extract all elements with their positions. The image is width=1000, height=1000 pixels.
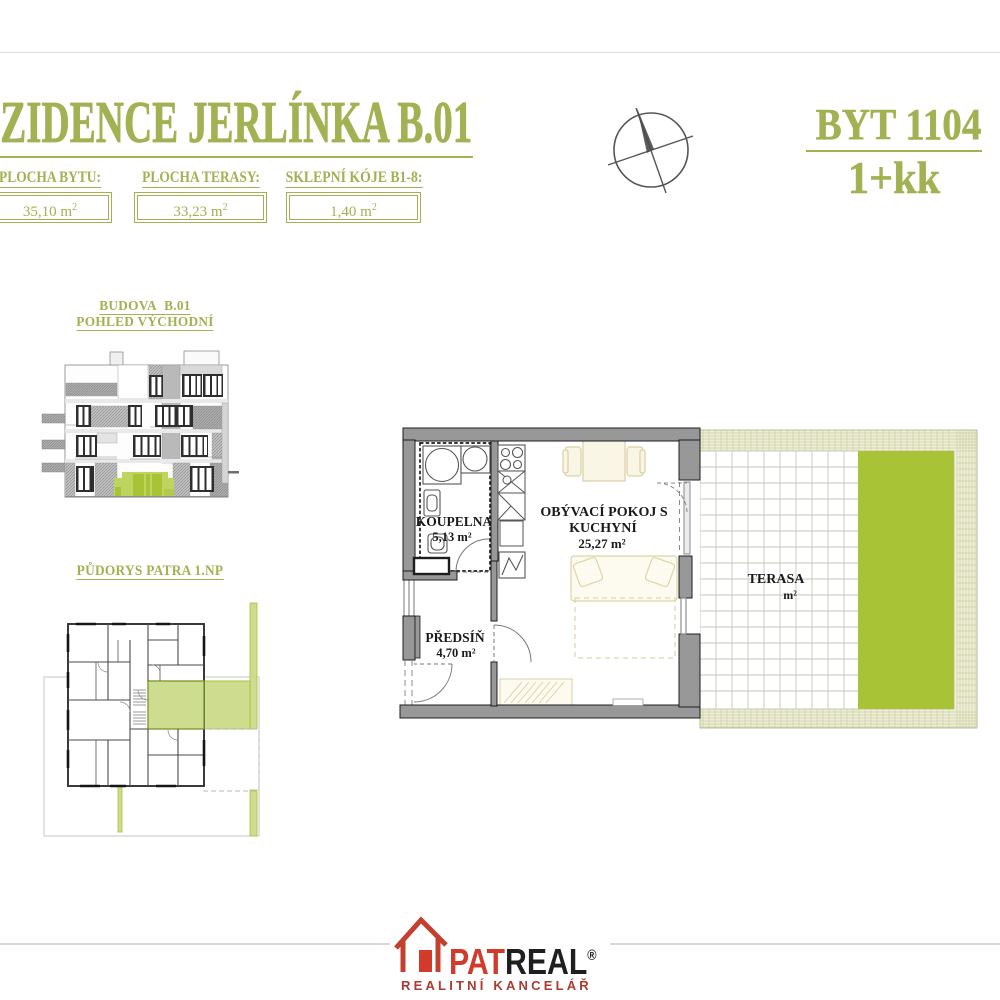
svg-text:m²: m² xyxy=(783,588,797,602)
svg-text:KOUPELNA: KOUPELNA xyxy=(416,514,493,529)
svg-text:5,13 m²: 5,13 m² xyxy=(432,530,471,544)
svg-text:PŘEDSÍŇ: PŘEDSÍŇ xyxy=(425,630,485,645)
svg-text:4,70 m²: 4,70 m² xyxy=(436,646,475,660)
svg-text:KUCHYNÍ: KUCHYNÍ xyxy=(569,519,637,536)
svg-text:25,27 m²: 25,27 m² xyxy=(578,536,625,551)
svg-text:TERASA: TERASA xyxy=(748,572,806,587)
svg-text:OBÝVACÍ POKOJ S: OBÝVACÍ POKOJ S xyxy=(540,503,668,520)
